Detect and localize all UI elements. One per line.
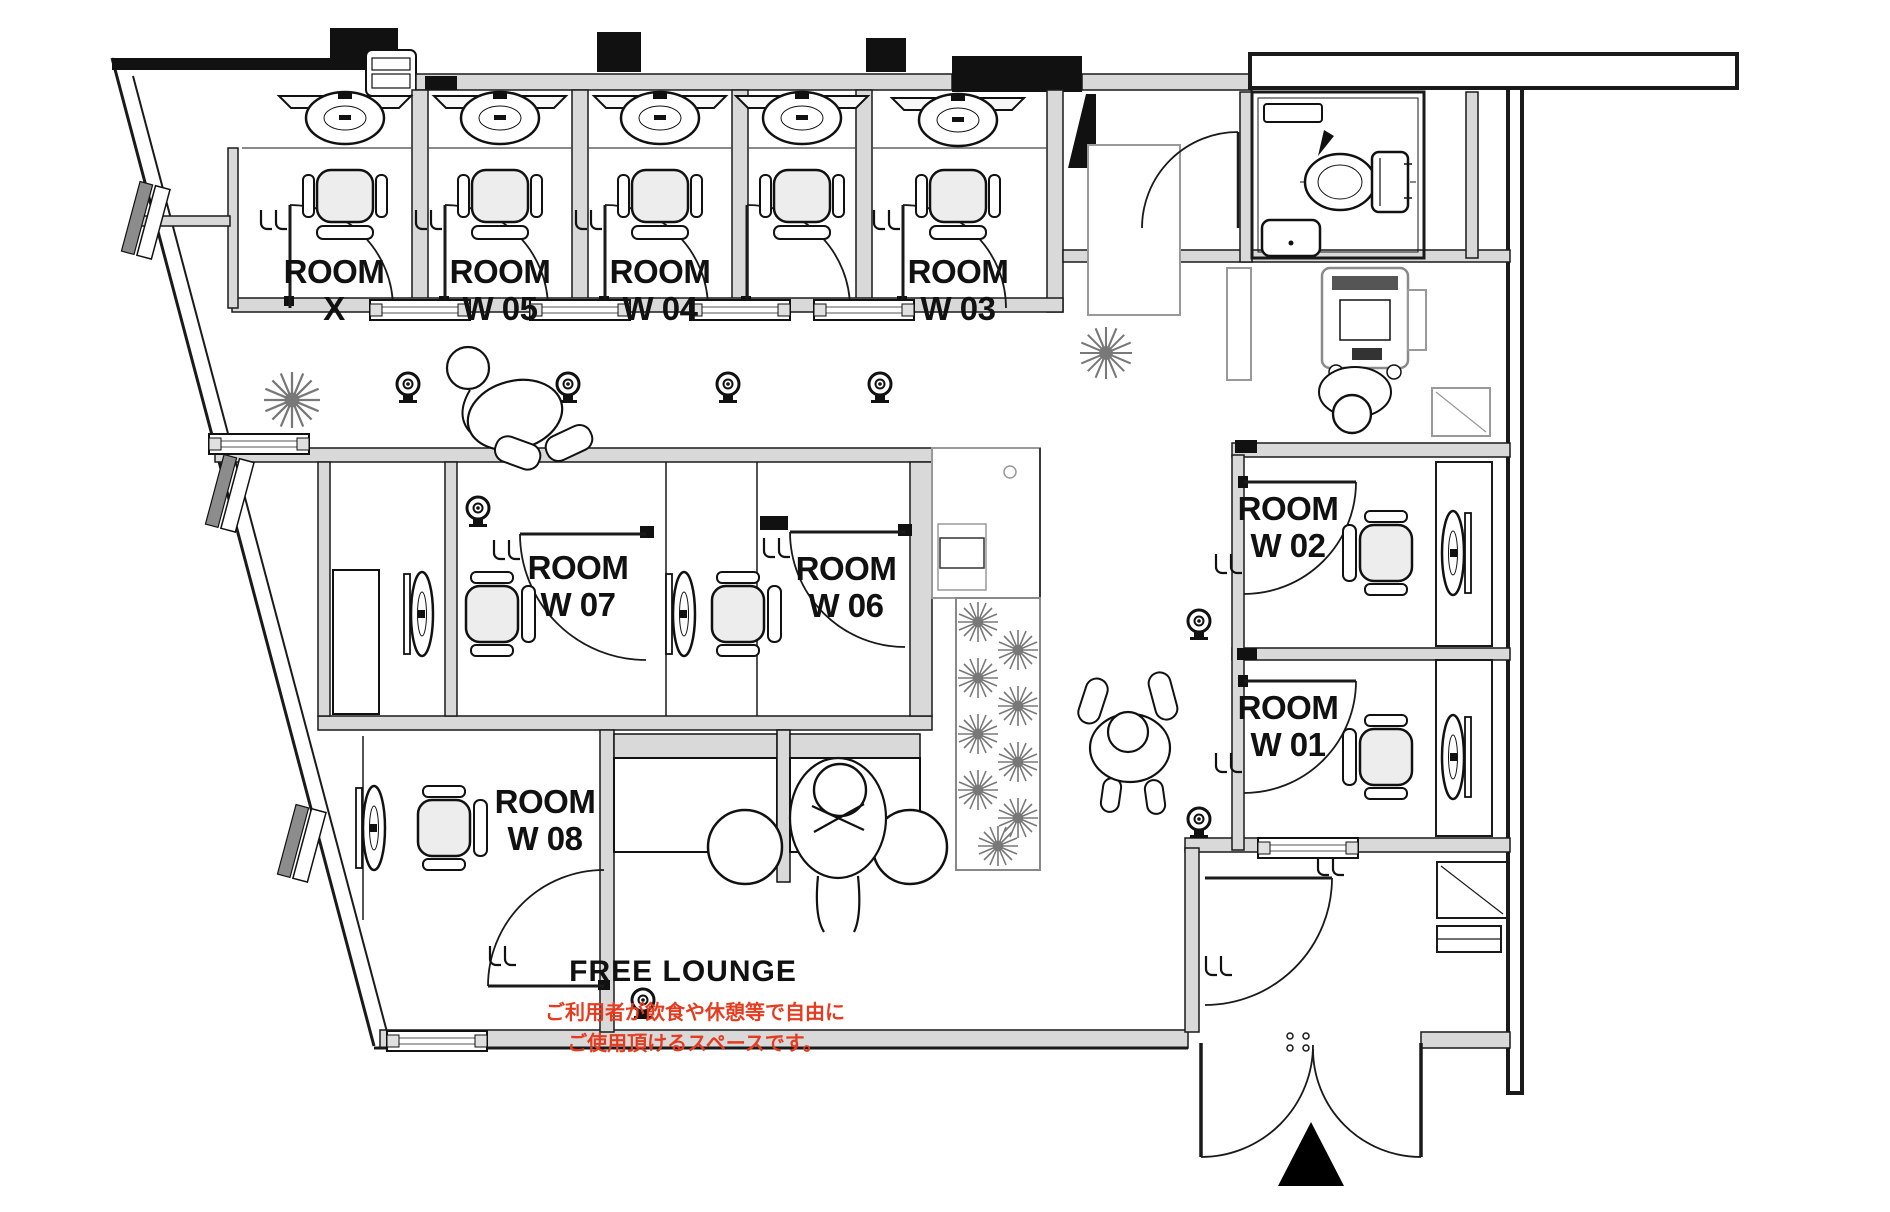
- toilet: [1262, 104, 1416, 256]
- floor-plan: ROOMX ROOMW 05 ROOMW 04 ROOMW 03 ROOMW 0…: [0, 0, 1890, 1212]
- floor-plan-linework: [0, 0, 1890, 1212]
- side-table: [1432, 388, 1490, 436]
- room-label-w03: ROOMW 03: [908, 254, 1009, 328]
- room-label-w01: ROOMW 01: [1238, 690, 1339, 764]
- person-at-copier: [1319, 367, 1391, 433]
- desk-monitor-row: [279, 92, 1024, 146]
- sliding-door-top: [366, 50, 416, 96]
- room-label-w05: ROOMW 05: [450, 254, 551, 328]
- round-stool: [708, 810, 782, 884]
- free-lounge-note: ご利用者が飲食や休憩等で自由にご使用頂けるスペースです。: [545, 998, 845, 1060]
- entrance-triangle-icon: [1278, 1122, 1344, 1186]
- cabinet: [333, 570, 379, 714]
- room-label-w04: ROOMW 04: [610, 254, 711, 328]
- room-label-x: ROOMX: [284, 254, 385, 328]
- free-lounge-title: FREE LOUNGE: [569, 955, 797, 989]
- copier: [1322, 268, 1426, 379]
- room-label-w07: ROOMW 07: [528, 550, 629, 624]
- sink: [1262, 220, 1320, 256]
- room-label-w08: ROOMW 08: [495, 784, 596, 858]
- person-lounge: [790, 758, 886, 932]
- room-label-w06: ROOMW 06: [796, 551, 897, 625]
- person-standing-hall: [1075, 670, 1179, 815]
- mirror-cabinet: [1437, 862, 1507, 952]
- door-entry-room: [1205, 856, 1344, 1005]
- room-label-w02: ROOMW 02: [1238, 491, 1339, 565]
